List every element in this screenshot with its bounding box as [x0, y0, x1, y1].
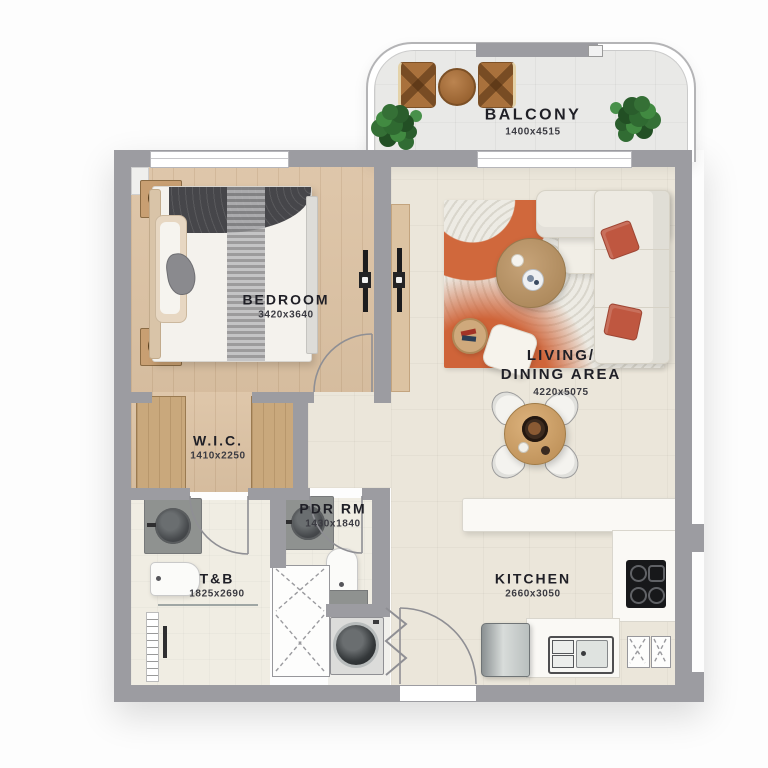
- bedroom-label: BEDROOM 3420x3640: [242, 292, 329, 321]
- pdr-label: PDR RM 1430x1840: [299, 501, 366, 530]
- tb-door-arc: [190, 496, 248, 554]
- room-dims: 1825x2690: [189, 589, 244, 600]
- door-swing-overlay: [0, 0, 768, 768]
- balcony-label: BALCONY 1400x4515: [485, 107, 582, 138]
- room-dims: 2660x3050: [495, 589, 571, 600]
- bifold-laundry-door: [386, 608, 406, 675]
- room-dims: 1400x4515: [485, 127, 582, 138]
- room-name: T&B: [189, 571, 244, 587]
- room-name: PDR RM: [299, 501, 366, 517]
- bedroom-door-arc: [314, 334, 372, 392]
- room-name: BALCONY: [485, 107, 582, 125]
- entry-door-arc: [400, 608, 476, 684]
- room-name: DINING AREA: [501, 366, 622, 385]
- floor-plan: BALCONY 1400x4515 BEDROOM 3420x3640 LIVI…: [0, 0, 768, 768]
- room-name: KITCHEN: [495, 571, 571, 587]
- room-dims: 1410x2250: [190, 451, 245, 462]
- room-dims: 4220x5075: [501, 386, 622, 397]
- room-dims: 1430x1840: [299, 519, 366, 530]
- room-name: BEDROOM: [242, 292, 329, 308]
- room-dims: 3420x3640: [242, 310, 329, 321]
- room-name: W.I.C.: [190, 433, 245, 449]
- wic-label: W.I.C. 1410x2250: [190, 433, 245, 462]
- tb-label: T&B 1825x2690: [189, 571, 244, 600]
- room-name: LIVING/: [501, 347, 622, 366]
- living-dining-label: LIVING/ DINING AREA 4220x5075: [501, 347, 622, 398]
- kitchen-label: KITCHEN 2660x3050: [495, 571, 571, 600]
